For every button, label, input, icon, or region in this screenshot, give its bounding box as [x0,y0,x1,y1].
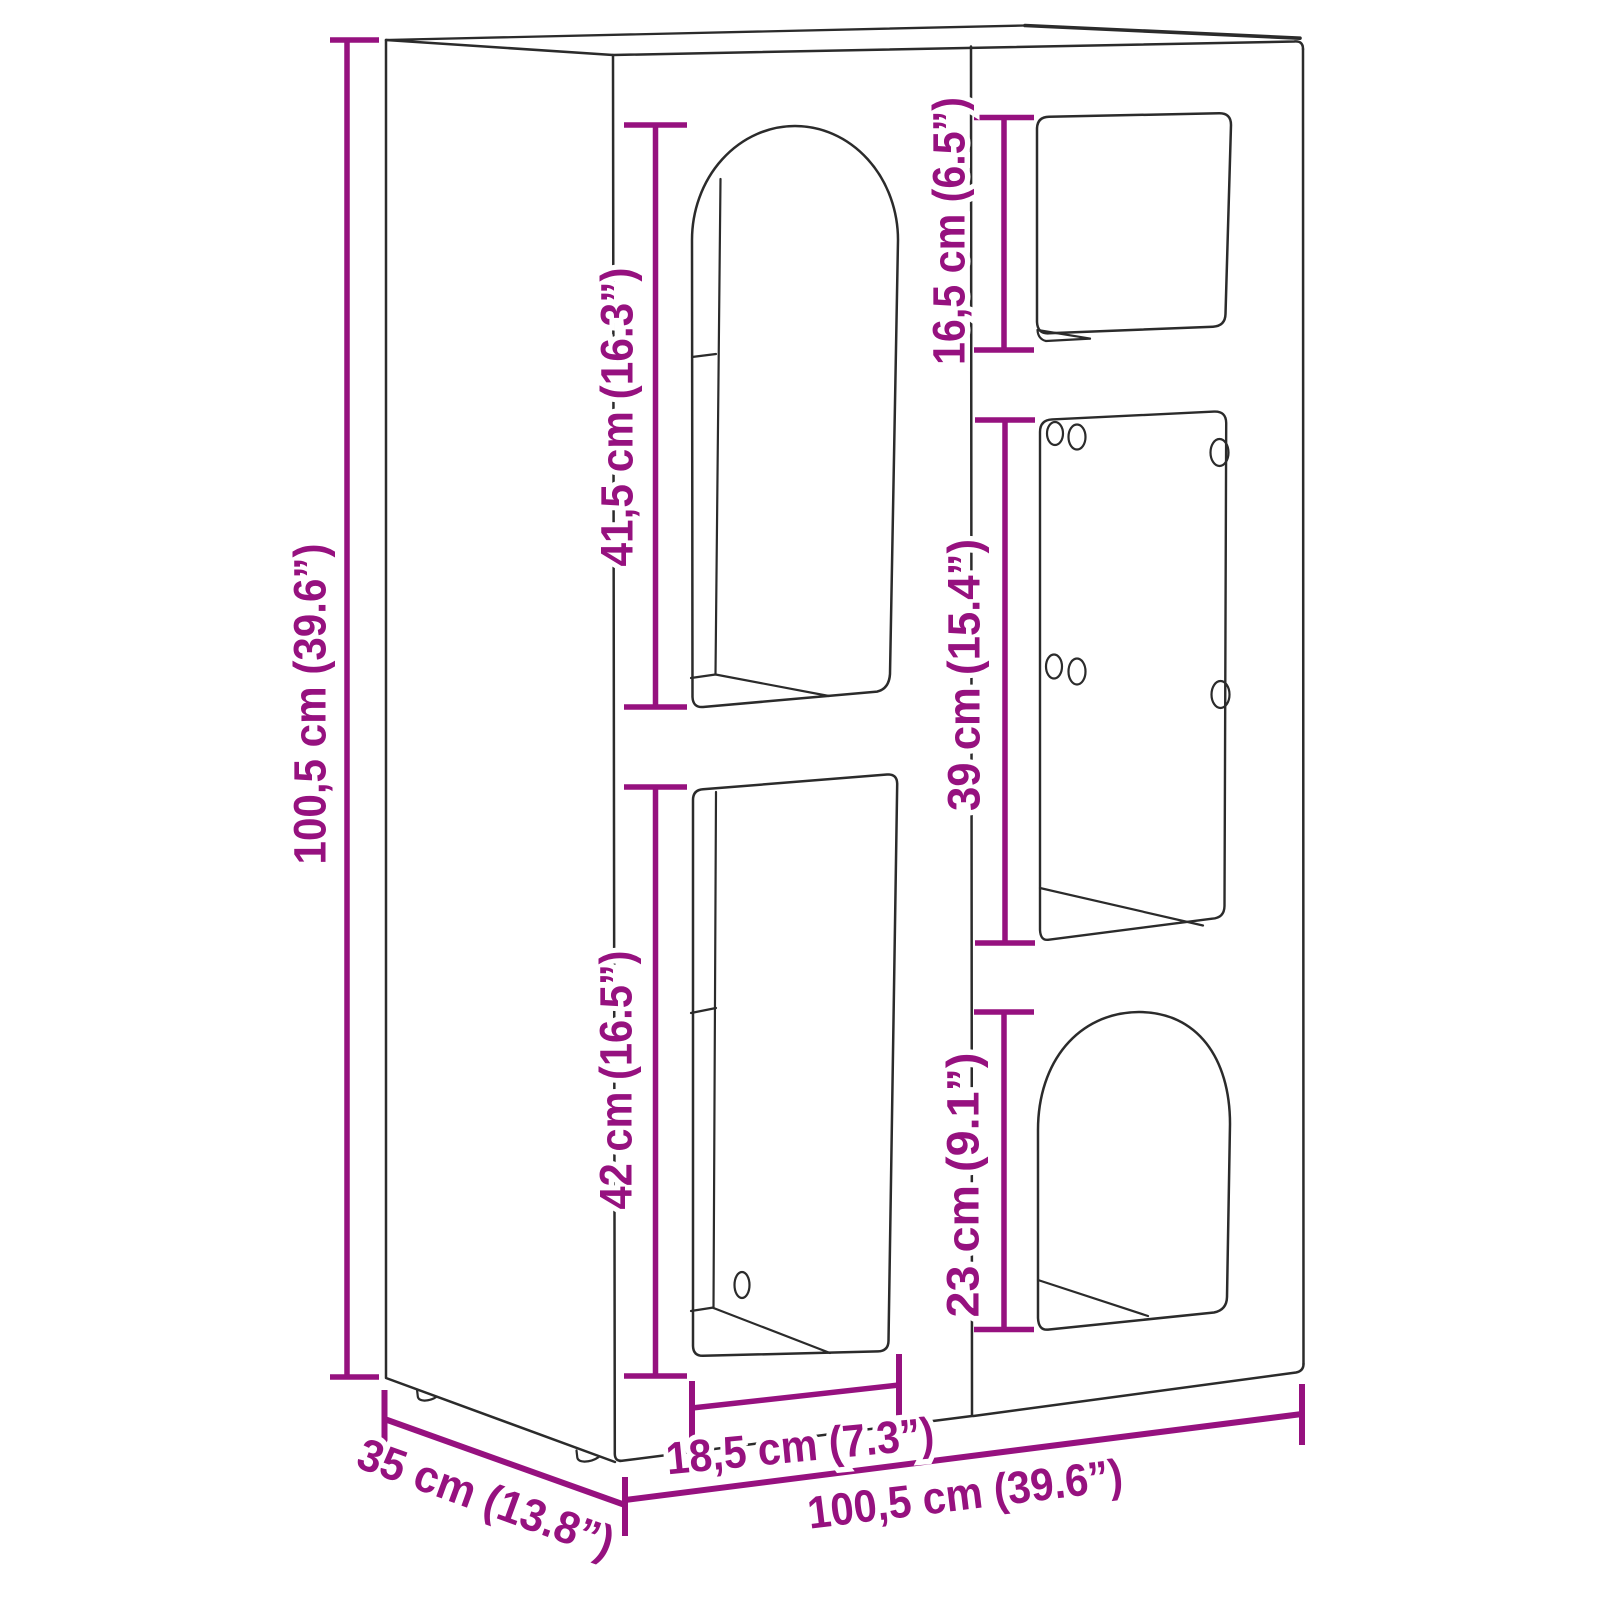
svg-text:18,5 cm (7.3”): 18,5 cm (7.3”) [664,1408,937,1485]
svg-text:42 cm (16.5”): 42 cm (16.5”) [591,951,642,1210]
svg-text:41,5 cm (16.3”): 41,5 cm (16.3”) [592,268,643,567]
svg-text:23 cm (9.1”): 23 cm (9.1”) [938,1053,989,1318]
svg-text:100,5 cm (39.6”): 100,5 cm (39.6”) [285,544,336,865]
svg-text:16,5 cm (6.5”): 16,5 cm (6.5”) [924,97,975,365]
svg-text:39 cm (15.4”): 39 cm (15.4”) [939,539,990,811]
